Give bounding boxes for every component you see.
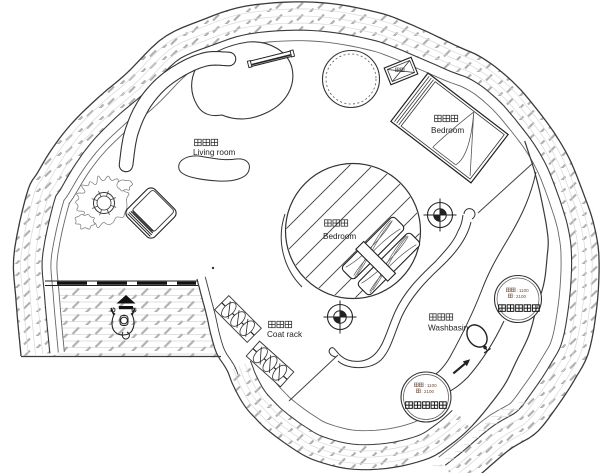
svg-text:Washbasin: Washbasin (428, 324, 469, 333)
svg-text:: 1100: : 1100 (517, 288, 530, 293)
svg-text:Coat rack: Coat rack (267, 330, 303, 339)
svg-text:: 2100: : 2100 (514, 294, 527, 299)
svg-text:Bedroom: Bedroom (431, 126, 464, 135)
svg-text:: 2100: : 2100 (422, 389, 435, 394)
svg-text:Living room: Living room (193, 148, 236, 157)
svg-text:Bedroom: Bedroom (323, 232, 356, 241)
svg-text:: 1100: : 1100 (425, 383, 438, 388)
